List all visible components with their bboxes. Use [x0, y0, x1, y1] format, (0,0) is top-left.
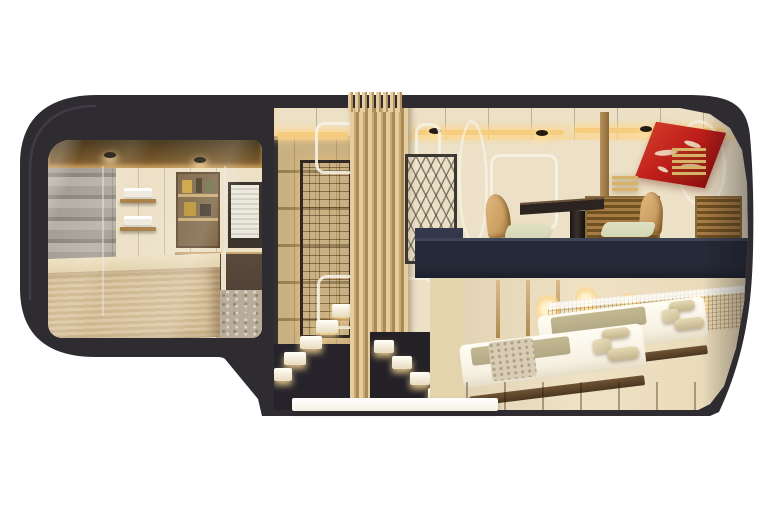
slat-screen-top	[348, 92, 404, 112]
seat-cushion	[504, 224, 553, 239]
seat-cushion	[600, 222, 657, 237]
downlight-icon	[536, 130, 548, 136]
lit-stair-step	[410, 372, 430, 385]
artwork-blossom	[657, 165, 670, 173]
louver-light	[612, 176, 638, 194]
train-cutaway-illustration	[0, 0, 769, 505]
knit-throw	[488, 338, 537, 382]
wood-wall-accent	[496, 280, 500, 338]
deck-divider-floor	[415, 238, 748, 278]
lit-stair-step	[284, 352, 306, 365]
underbody-light-strip	[292, 398, 498, 411]
lit-stair-step	[316, 320, 338, 333]
lit-stair-step	[274, 368, 292, 381]
lit-stair-step	[392, 356, 412, 369]
lit-stair-step	[300, 336, 322, 349]
lit-stair-step	[374, 340, 394, 353]
wood-wall-accent	[526, 280, 530, 336]
lounge-bar-window	[48, 140, 262, 338]
downlight-icon	[640, 126, 652, 132]
louver-light	[672, 148, 706, 176]
cutaway-interior	[274, 108, 748, 410]
glass-reflection	[48, 140, 262, 338]
